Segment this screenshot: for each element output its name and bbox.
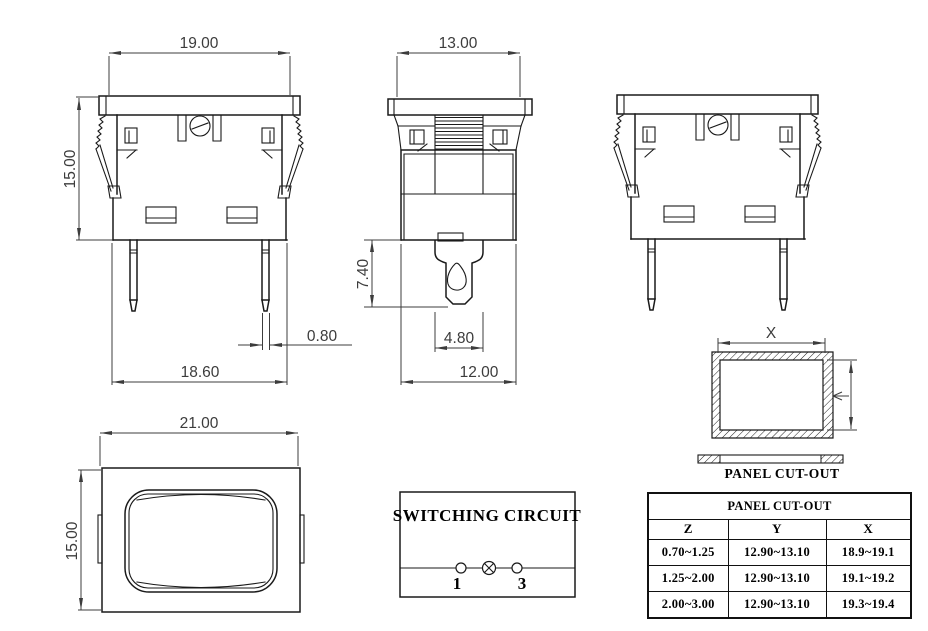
- dim-panel-x: X: [766, 325, 777, 342]
- terminal-3-label: 3: [518, 574, 527, 593]
- panel-cutout-caption: PANEL CUT-OUT: [725, 466, 840, 481]
- rear-view: [614, 95, 821, 310]
- table-cell: 0.70~1.25: [648, 539, 728, 565]
- dim-face-width: 21.00: [180, 415, 219, 432]
- table-cell: 19.3~19.4: [826, 591, 911, 618]
- table-cell: 18.9~19.1: [826, 539, 911, 565]
- terminal-1-symbol: [456, 563, 466, 573]
- table-title: PANEL CUT-OUT: [648, 493, 911, 519]
- table-cell: 12.90~13.10: [728, 591, 826, 618]
- table-col-y: Y: [728, 519, 826, 539]
- face-view-dimensions: 21.00 15.00: [64, 415, 298, 610]
- dim-front-width-top: 19.00: [180, 35, 219, 52]
- face-view: [98, 468, 304, 612]
- table-cell: 19.1~19.2: [826, 565, 911, 591]
- dim-front-width-bottom: 18.60: [181, 364, 220, 381]
- table-cell: 12.90~13.10: [728, 539, 826, 565]
- switching-circuit-box: SWITCHING CIRCUIT 1 3: [393, 492, 582, 597]
- table-row: 2.00~3.00 12.90~13.10 19.3~19.4: [648, 591, 911, 618]
- dim-side-width-bottom: 12.00: [460, 364, 499, 381]
- panel-cutout-table: PANEL CUT-OUT Z Y X 0.70~1.25 12.90~13.1…: [647, 492, 912, 619]
- dim-front-height: 15.00: [62, 149, 79, 188]
- dim-side-terminal-length: 7.40: [355, 259, 372, 290]
- drawing-sheet: 19.00 15.00 0.80 18.60: [0, 0, 928, 631]
- table-cell: 12.90~13.10: [728, 565, 826, 591]
- table-row: 0.70~1.25 12.90~13.10 18.9~19.1: [648, 539, 911, 565]
- terminal-3-symbol: [512, 563, 522, 573]
- front-view: [96, 96, 303, 311]
- table-row: 1.25~2.00 12.90~13.10 19.1~19.2: [648, 565, 911, 591]
- table-cell: 1.25~2.00: [648, 565, 728, 591]
- table-cell: 2.00~3.00: [648, 591, 728, 618]
- dim-face-height: 15.00: [64, 521, 81, 560]
- side-view: [388, 99, 532, 304]
- dim-side-terminal-width: 4.80: [444, 330, 475, 347]
- circuit-title: SWITCHING CIRCUIT: [393, 506, 582, 525]
- panel-cutout-drawing: X PANEL CUT-OUT: [698, 325, 857, 481]
- terminal-1-label: 1: [453, 574, 462, 593]
- table-col-z: Z: [648, 519, 728, 539]
- side-view-dimensions: 13.00 7.40 4.80 12.00: [355, 35, 520, 385]
- panel-thickness-leader: [833, 392, 849, 400]
- front-view-dimensions: 19.00 15.00 0.80 18.60: [62, 35, 352, 385]
- table-col-x: X: [826, 519, 911, 539]
- dim-side-width-top: 13.00: [439, 35, 478, 52]
- dim-front-pin-width: 0.80: [307, 328, 338, 345]
